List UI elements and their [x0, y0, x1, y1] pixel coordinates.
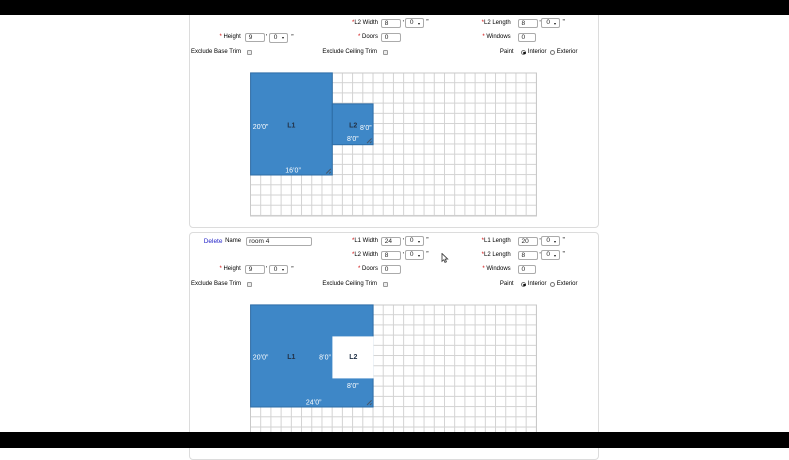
svg-text:8’0”: 8’0” — [360, 125, 372, 132]
svg-text:L2: L2 — [349, 354, 357, 361]
svg-text:20’0”: 20’0” — [253, 124, 269, 131]
svg-text:L2: L2 — [349, 123, 357, 130]
svg-text:24’0”: 24’0” — [306, 400, 322, 407]
svg-text:8’0”: 8’0” — [347, 383, 359, 390]
svg-text:L1: L1 — [287, 123, 295, 130]
svg-text:8’0”: 8’0” — [319, 355, 331, 362]
svg-text:L1: L1 — [287, 354, 295, 361]
svg-text:20’0”: 20’0” — [253, 355, 269, 362]
svg-text:16’0”: 16’0” — [285, 167, 301, 174]
svg-text:8’0”: 8’0” — [347, 136, 359, 143]
